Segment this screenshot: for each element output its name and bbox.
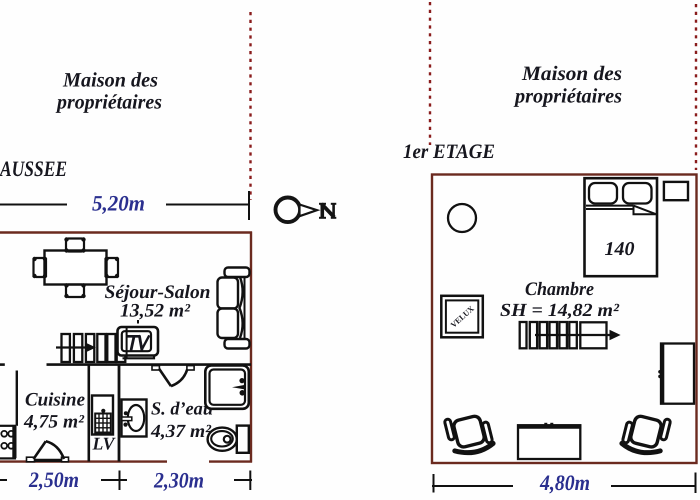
svg-text:propriétaires: propriétaires bbox=[513, 86, 622, 108]
svg-text:Cuisine: Cuisine bbox=[25, 390, 86, 411]
svg-text:13,52 m²: 13,52 m² bbox=[120, 301, 191, 322]
svg-text:LV: LV bbox=[92, 434, 117, 454]
svg-text:4,75 m²: 4,75 m² bbox=[23, 412, 85, 433]
svg-text:S. d’eau: S. d’eau bbox=[151, 400, 213, 420]
svg-text:5,20m: 5,20m bbox=[92, 191, 145, 216]
svg-text:Maison des: Maison des bbox=[62, 70, 158, 92]
svg-text:140: 140 bbox=[605, 239, 635, 260]
svg-text:4,37 m²: 4,37 m² bbox=[150, 422, 212, 442]
svg-text:AUSSEE: AUSSEE bbox=[0, 156, 67, 181]
svg-text:2,30m: 2,30m bbox=[153, 468, 204, 493]
svg-text:4,80m: 4,80m bbox=[539, 470, 590, 495]
svg-text:1er ETAGE: 1er ETAGE bbox=[403, 141, 495, 163]
svg-text:propriétaires: propriétaires bbox=[55, 92, 162, 114]
svg-text:Chambre: Chambre bbox=[525, 279, 595, 300]
svg-text:Maison des: Maison des bbox=[521, 63, 622, 85]
svg-text:SH = 14,82 m²: SH = 14,82 m² bbox=[500, 301, 619, 321]
svg-text:2,50m: 2,50m bbox=[28, 467, 79, 492]
